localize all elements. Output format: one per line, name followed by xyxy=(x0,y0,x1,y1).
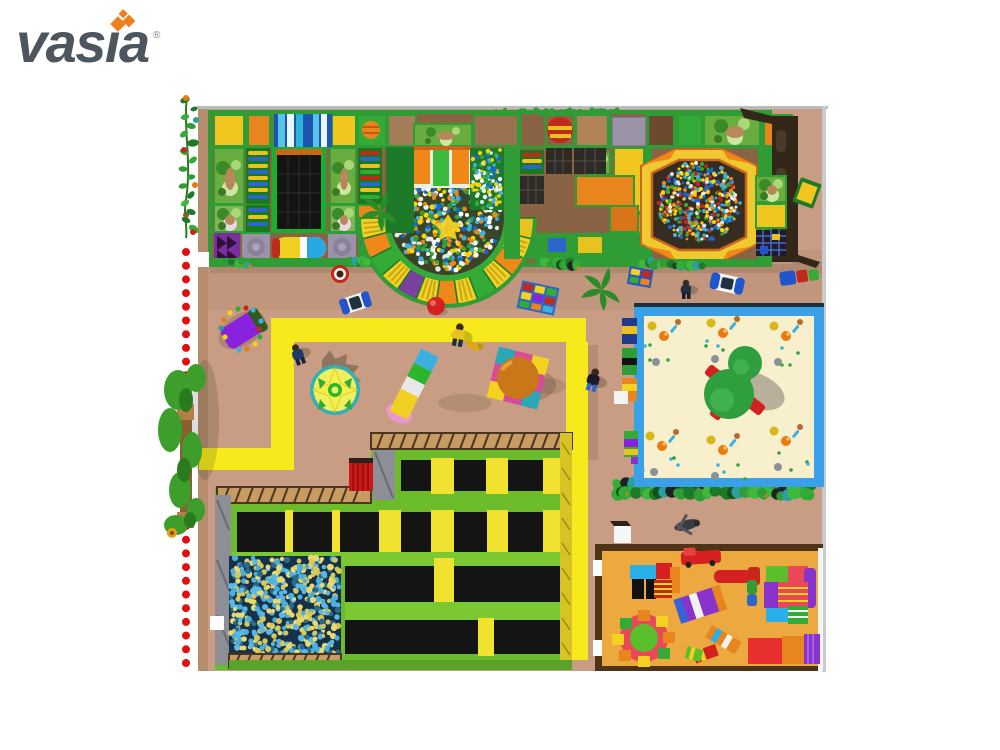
svg-text:®: ® xyxy=(153,30,161,41)
